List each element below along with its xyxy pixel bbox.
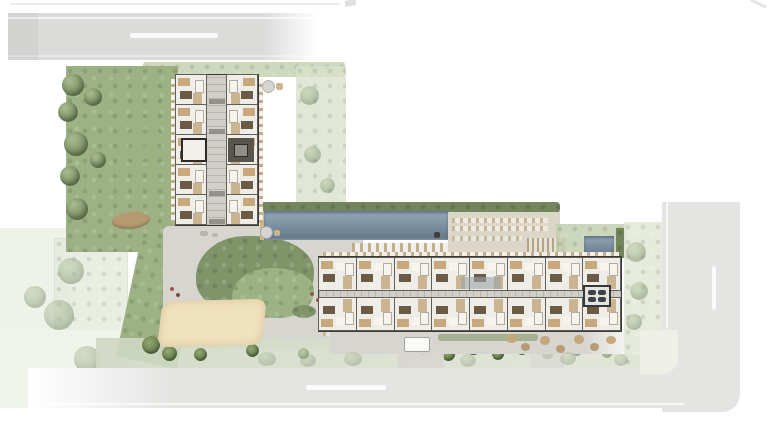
elevator-cab [588, 290, 596, 295]
lounger-row [452, 226, 548, 231]
elevator-core [228, 138, 254, 162]
street-bottom [28, 368, 684, 408]
building-south-slab [318, 256, 622, 332]
lounger-row [452, 218, 548, 223]
amenity-slate [461, 277, 501, 289]
tree [64, 132, 88, 156]
apartment-unit [226, 74, 258, 105]
apartment-unit [318, 297, 357, 331]
lounge-furniture [590, 343, 599, 351]
tree [626, 314, 642, 330]
building-north-tower [175, 74, 259, 226]
street-tree [614, 354, 628, 366]
corridor-landing [209, 219, 225, 224]
tree [626, 242, 646, 262]
elevator-core [583, 285, 611, 307]
service-van [404, 337, 430, 352]
apartment-unit [507, 297, 546, 331]
apartment-unit [226, 194, 258, 225]
balcony-strip-east [259, 79, 263, 223]
bush [162, 346, 177, 361]
street-top [8, 13, 318, 60]
paver-circle [260, 226, 273, 239]
lounge-furniture [521, 343, 530, 351]
apartment-unit [507, 257, 546, 291]
bench [170, 287, 174, 291]
tower-corridor [207, 75, 227, 225]
paver-circle [262, 80, 275, 93]
corridor-landing [209, 191, 225, 196]
apartment-unit [226, 104, 258, 135]
lounge-furniture [540, 336, 550, 345]
sand-court [157, 299, 267, 348]
apartment-unit [175, 164, 207, 195]
apartment-unit [545, 257, 584, 291]
tree [90, 152, 106, 168]
balcony-strip-north [323, 252, 619, 256]
tree [630, 282, 648, 300]
street-tree [344, 352, 362, 366]
bush [194, 348, 207, 361]
garden-island-small [292, 305, 316, 318]
apartment-unit [545, 297, 584, 331]
corridor-landing [209, 99, 225, 104]
lounge-furniture [574, 335, 584, 344]
street-tree [258, 352, 276, 366]
street-tree [560, 352, 576, 365]
tree [84, 88, 102, 106]
apartment-unit [394, 257, 433, 291]
apartment-unit [469, 297, 508, 331]
tree [58, 258, 84, 284]
apartment-unit [431, 297, 470, 331]
apartment-unit [394, 297, 433, 331]
lap-pool [264, 211, 448, 240]
bench [310, 292, 314, 296]
tree [66, 198, 88, 220]
tree [320, 178, 335, 193]
corridor-landing [209, 129, 225, 134]
top-right-mark [345, 0, 357, 7]
tree [44, 300, 74, 330]
lounge-furniture [606, 336, 616, 344]
street-tree [300, 354, 316, 367]
road-fade [28, 368, 684, 408]
tree [300, 86, 319, 105]
planter [200, 231, 208, 236]
pool-ladder [434, 232, 440, 238]
apartment-unit [175, 74, 207, 105]
bush [246, 344, 259, 357]
curb-line [666, 202, 668, 328]
street-right-label-blur [712, 266, 716, 310]
tree [304, 146, 321, 163]
hedge-low [438, 334, 538, 341]
road-fade [8, 13, 318, 60]
elevator-cab [234, 144, 248, 157]
apartment-unit [175, 194, 207, 225]
apartment-unit [318, 257, 357, 291]
apartment-unit [226, 164, 258, 195]
planter [212, 233, 218, 237]
lounger-row [452, 236, 522, 241]
bench [176, 293, 180, 297]
planter [274, 230, 280, 236]
top-edge-line [10, 3, 340, 5]
planter [276, 83, 283, 90]
tree [60, 166, 80, 186]
tree [58, 102, 78, 122]
site-corner-tile [640, 330, 678, 374]
lounge-furniture [506, 334, 517, 343]
tree [62, 74, 84, 96]
site-plan-canvas [0, 0, 768, 425]
corner-mark [750, 0, 767, 8]
apartment-unit [356, 257, 395, 291]
apartment-unit [175, 104, 207, 135]
stair-core-frame [181, 138, 207, 162]
elevator-cab [598, 290, 606, 295]
elevator-cab [588, 297, 596, 302]
elevator-cab [598, 297, 606, 302]
apartment-unit [356, 297, 395, 331]
street-tree [460, 354, 476, 367]
slab-units-south [319, 297, 621, 331]
tree [24, 286, 46, 308]
